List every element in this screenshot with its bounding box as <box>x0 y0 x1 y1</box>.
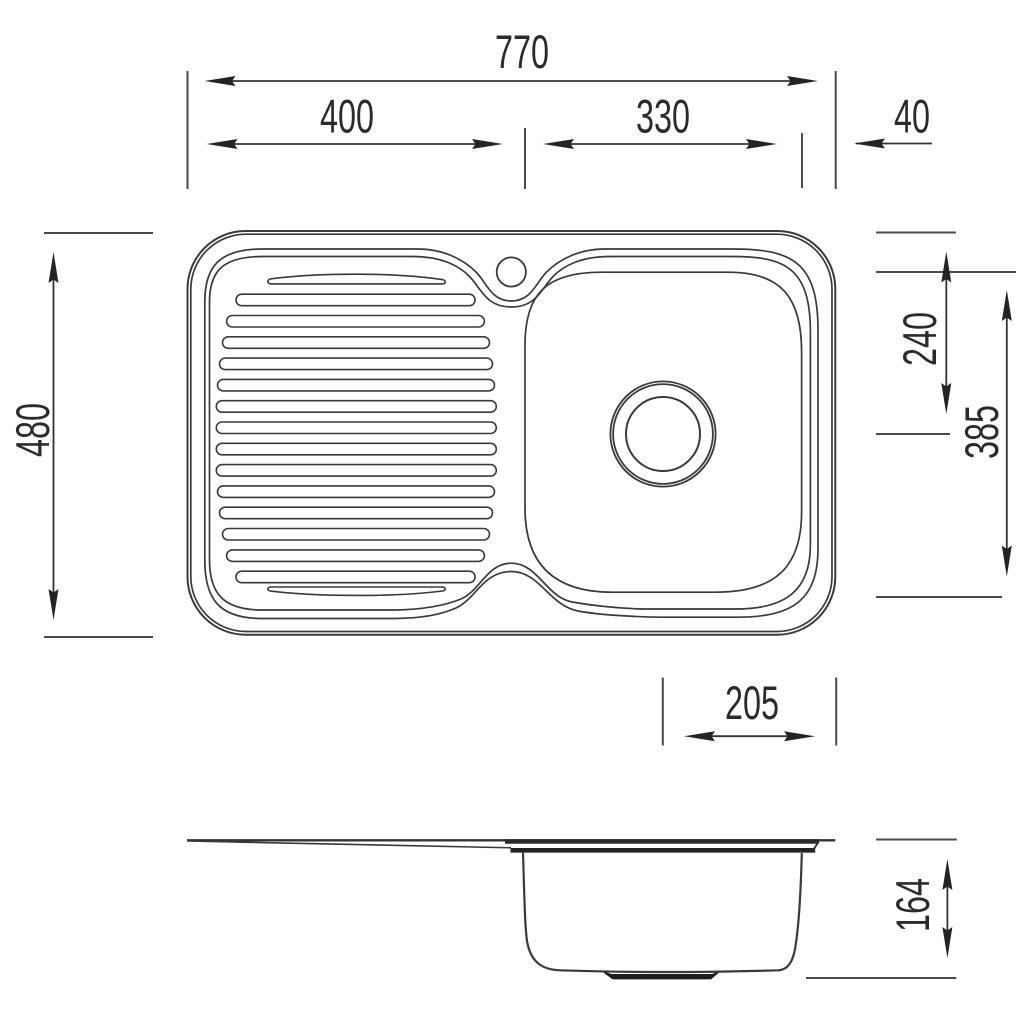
svg-text:770: 770 <box>495 25 549 78</box>
svg-text:330: 330 <box>636 90 690 143</box>
svg-text:240: 240 <box>893 312 946 366</box>
svg-text:40: 40 <box>894 90 930 143</box>
svg-text:164: 164 <box>886 878 939 932</box>
svg-text:385: 385 <box>955 405 1008 459</box>
svg-text:205: 205 <box>725 676 779 729</box>
svg-text:400: 400 <box>320 90 374 143</box>
svg-text:480: 480 <box>6 403 59 457</box>
